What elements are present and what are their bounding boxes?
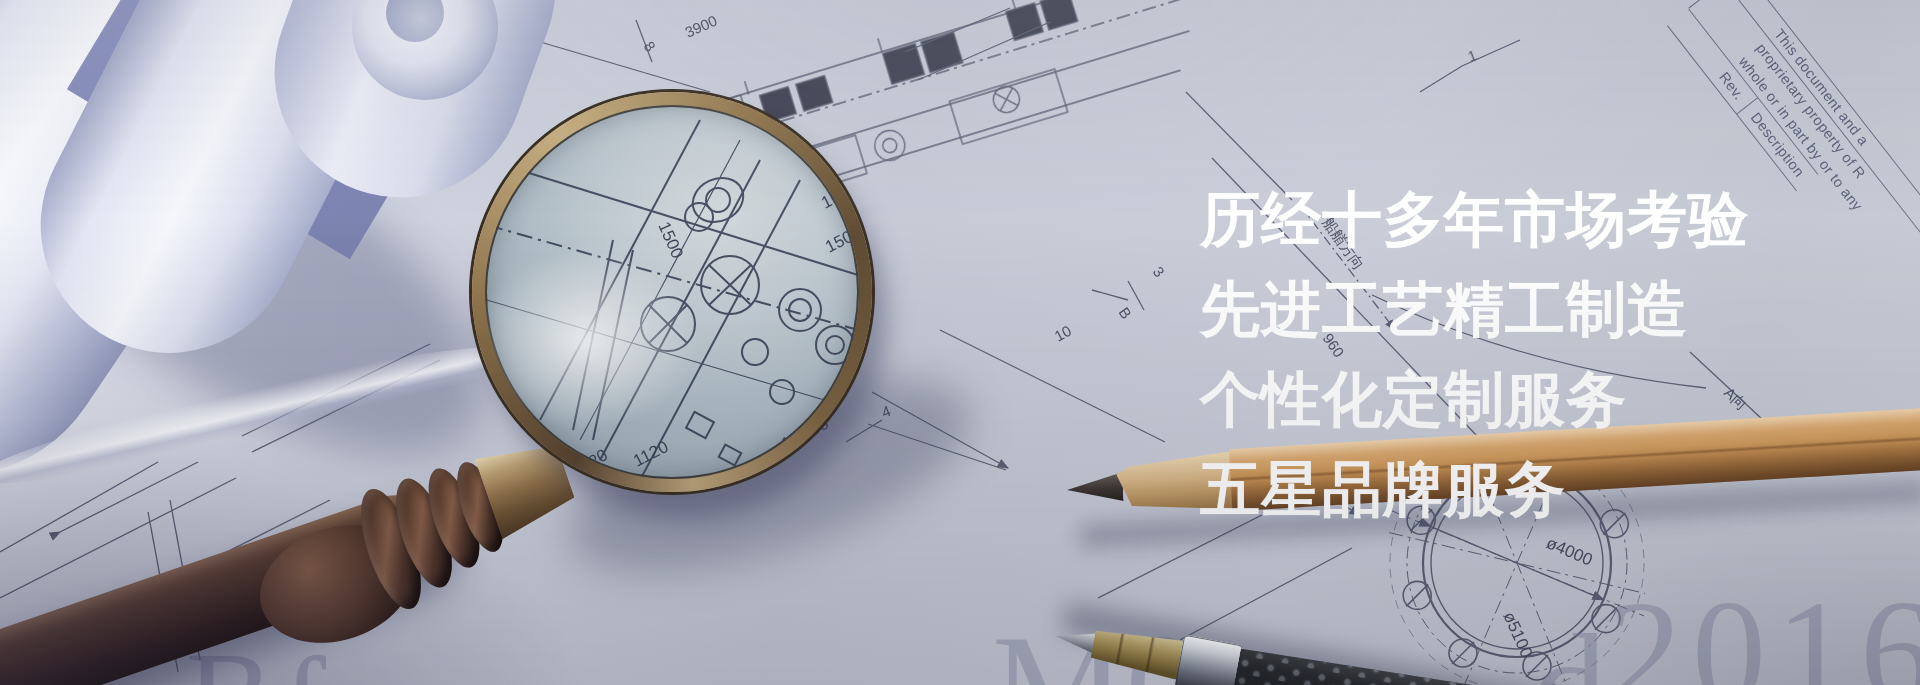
pen-chrome-ring xyxy=(1174,635,1243,685)
pencil-graphite-tip xyxy=(1066,472,1124,505)
headline-line-2: 先进工艺精工制造 xyxy=(1200,265,1749,355)
dim-label: 3 xyxy=(1150,263,1168,280)
pen-tip xyxy=(1054,625,1097,654)
headline-line-1: 历经十多年市场考验 xyxy=(1200,175,1749,265)
dim-label: 3900 xyxy=(682,12,719,41)
magnifying-glass: 1500 1500 1500 1500 1120 120 xyxy=(472,92,872,492)
pen-gold-section xyxy=(1089,624,1185,680)
headline-line-4: 五星品牌服务 xyxy=(1200,445,1749,535)
dim-label: 10 xyxy=(1051,322,1074,345)
watermark-year: 2016— xyxy=(1608,570,1920,685)
headline-line-3: 个性化定制服务 xyxy=(1200,355,1749,445)
dim-label: B xyxy=(1116,304,1136,322)
dim-label: 1 xyxy=(1465,46,1479,65)
hero-banner: 600 3900 8 3 B 10 1 4 1500 230 960 船艏方向 … xyxy=(0,0,1920,685)
watermark-fragment: d xyxy=(1532,604,1607,685)
dia-5100-label: ø5100 xyxy=(1499,609,1536,661)
headline: 历经十多年市场考验 先进工艺精工制造 个性化定制服务 五星品牌服务 xyxy=(1200,175,1749,535)
dia-4000-label: ø4000 xyxy=(1543,533,1595,569)
glass-sheen xyxy=(485,105,859,479)
lens-glass: 1500 1500 1500 1500 1120 120 xyxy=(485,105,859,479)
